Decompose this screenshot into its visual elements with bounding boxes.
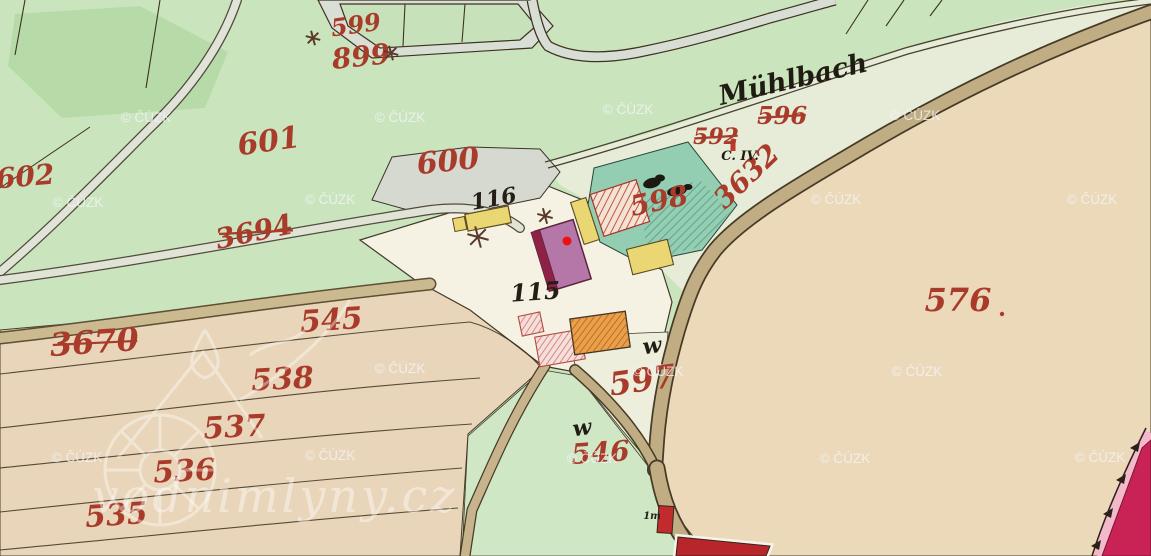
cuzk-watermark: © ČÚZK: [633, 364, 683, 379]
parcel-576-dot: [1000, 312, 1004, 316]
cuzk-watermark: © ČÚZK: [305, 448, 355, 463]
cuzk-watermark: © ČÚZK: [375, 361, 425, 376]
mill-dot-marker: [563, 237, 572, 246]
cuzk-watermark: © ČÚZK: [305, 192, 355, 207]
parcel-number-label: 600: [415, 141, 481, 182]
cuzk-watermark: © ČÚZK: [1075, 450, 1125, 465]
cuzk-watermark: © ČÚZK: [892, 364, 942, 379]
cuzk-watermark: © ČÚZK: [811, 192, 861, 207]
section-label: C. IV.: [721, 149, 759, 164]
cuzk-watermark: © ČÚZK: [121, 110, 171, 125]
map-canvas[interactable]: 5998996016006023694596592363259854536705…: [0, 0, 1151, 556]
cuzk-watermark: © ČÚZK: [53, 195, 103, 210]
parcel-number-label: 538: [250, 360, 314, 398]
cuzk-watermark: © ČÚZK: [603, 102, 653, 117]
parcel-number-label: 899: [329, 37, 392, 76]
parcel-number-label: 545: [299, 301, 364, 340]
map-surface[interactable]: 5998996016006023694596592363259854536705…: [0, 0, 1151, 556]
cuzk-watermark: © ČÚZK: [1067, 192, 1117, 207]
cuzk-watermark: © ČÚZK: [375, 110, 425, 125]
cuzk-watermark: © ČÚZK: [567, 451, 617, 466]
house-number-label: 1m: [643, 511, 661, 522]
parcel-number-label: 602: [0, 158, 56, 196]
vodnimlyny-watermark: vodnimlyny.cz: [93, 469, 458, 523]
parcel-number-label: 537: [202, 408, 266, 446]
parcel-number-label: 576: [925, 281, 992, 319]
cuzk-watermark: © ČÚZK: [890, 108, 940, 123]
cuzk-watermark: © ČÚZK: [52, 450, 102, 465]
house-number-label: 115: [509, 275, 561, 307]
cuzk-watermark: © ČÚZK: [820, 451, 870, 466]
wooden-annex-116: [452, 216, 466, 231]
